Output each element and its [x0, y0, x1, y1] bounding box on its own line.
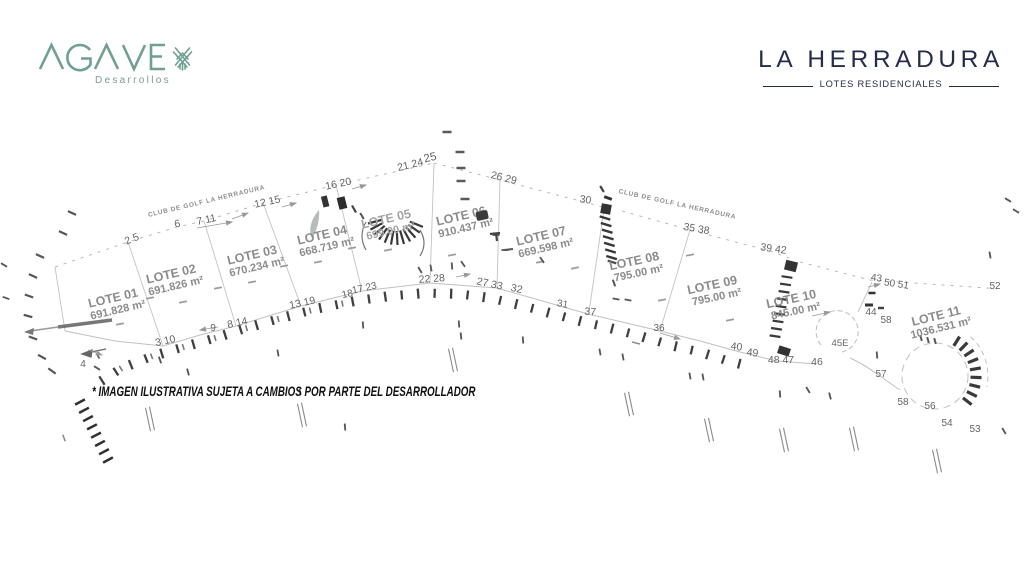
svg-text:36: 36 — [653, 323, 665, 334]
svg-text:44: 44 — [865, 307, 877, 318]
svg-text:35 38: 35 38 — [683, 221, 711, 237]
svg-text:48 47: 48 47 — [768, 354, 794, 366]
svg-text:8 14: 8 14 — [226, 315, 249, 331]
svg-text:30: 30 — [579, 193, 592, 207]
svg-text:45E: 45E — [832, 338, 849, 349]
svg-text:9: 9 — [210, 323, 216, 334]
svg-text:57: 57 — [875, 369, 887, 380]
svg-text:49: 49 — [746, 346, 759, 360]
svg-text:17 23: 17 23 — [351, 280, 378, 296]
svg-text:27 33: 27 33 — [476, 275, 504, 292]
svg-text:6: 6 — [173, 218, 181, 231]
svg-text:31: 31 — [556, 298, 569, 311]
svg-text:52: 52 — [989, 281, 1001, 292]
svg-text:54: 54 — [941, 418, 953, 429]
svg-text:58: 58 — [880, 315, 892, 326]
svg-text:46: 46 — [811, 356, 823, 368]
svg-text:32: 32 — [510, 282, 524, 296]
svg-text:40: 40 — [730, 340, 743, 354]
svg-text:56: 56 — [924, 401, 936, 412]
svg-text:7 11: 7 11 — [196, 212, 218, 228]
svg-text:2 5: 2 5 — [123, 231, 141, 248]
svg-text:22 28: 22 28 — [418, 272, 445, 286]
svg-text:16 20: 16 20 — [324, 175, 352, 192]
svg-text:CLUB DE GOLF LA HERRADURA: CLUB DE GOLF LA HERRADURA — [618, 188, 737, 221]
svg-text:58: 58 — [897, 397, 909, 408]
svg-text:21 24: 21 24 — [396, 156, 425, 174]
svg-text:13 19: 13 19 — [288, 294, 316, 311]
svg-text:3 10: 3 10 — [154, 333, 177, 349]
svg-text:50 51: 50 51 — [883, 277, 910, 291]
svg-text:43: 43 — [870, 272, 883, 285]
svg-text:37: 37 — [584, 306, 597, 319]
svg-text:53: 53 — [969, 424, 981, 435]
svg-text:4: 4 — [80, 359, 86, 370]
svg-text:39 42: 39 42 — [760, 241, 788, 257]
svg-text:12 15: 12 15 — [253, 193, 281, 210]
svg-text:26 29: 26 29 — [490, 169, 519, 187]
